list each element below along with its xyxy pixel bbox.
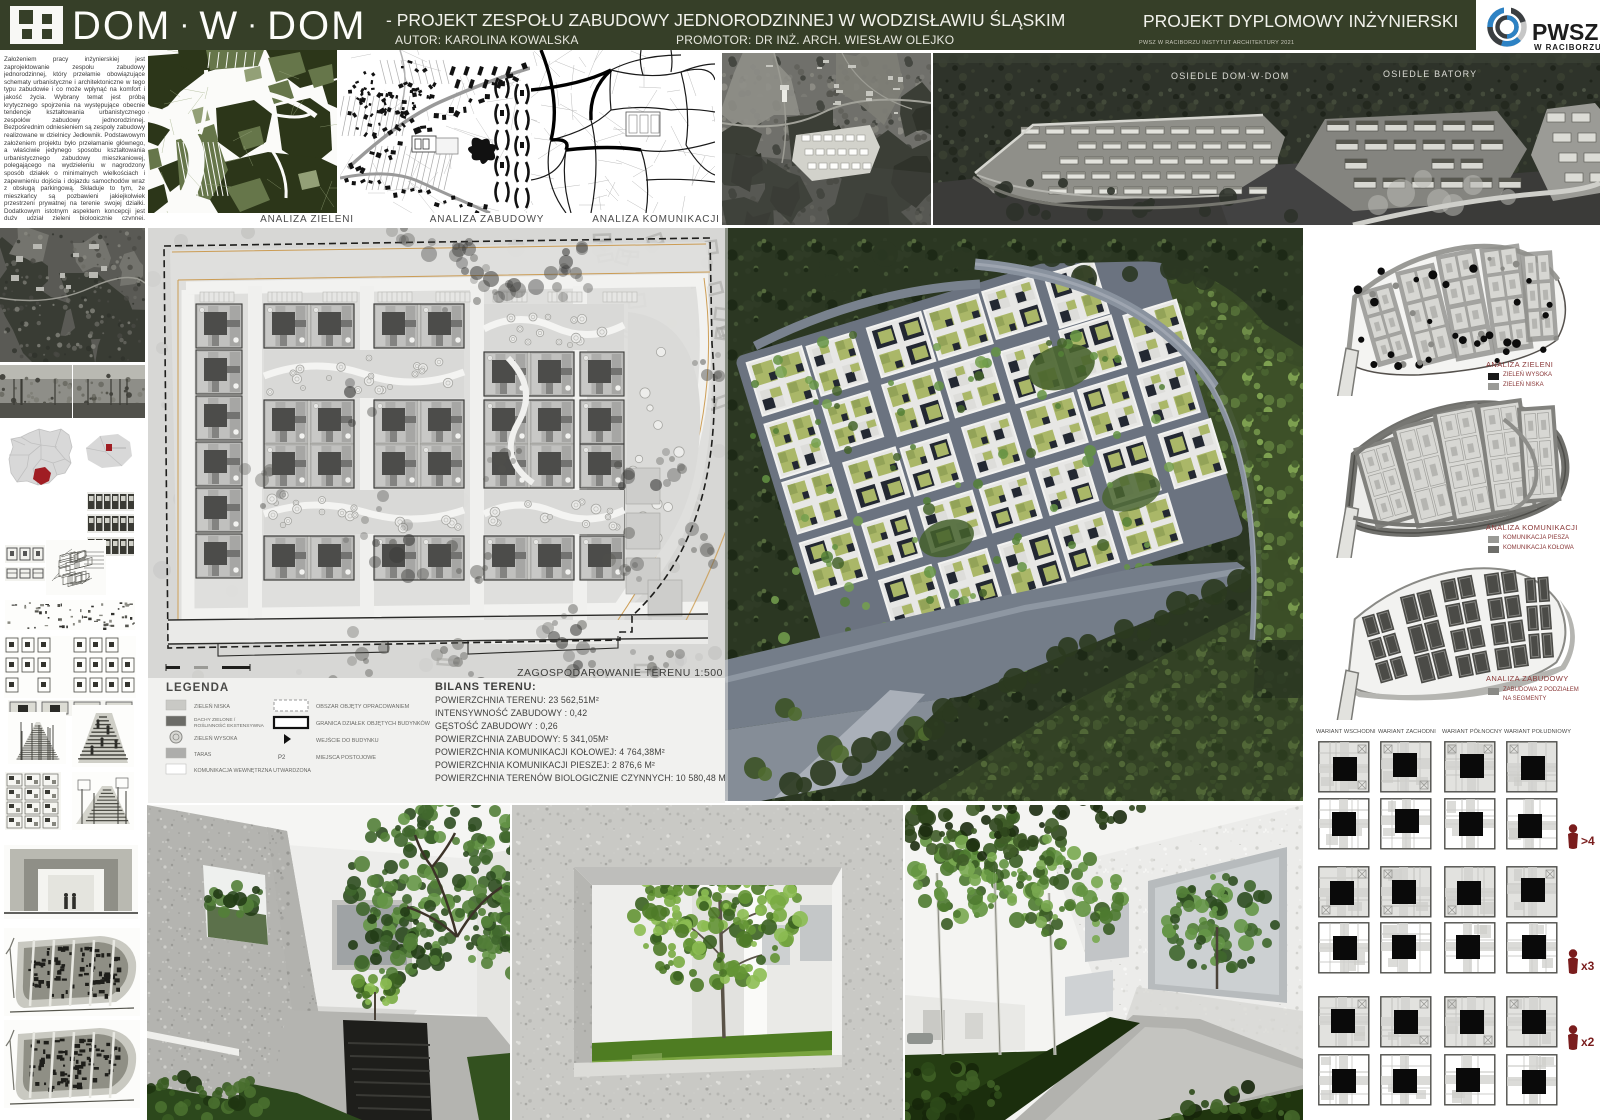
svg-text:W RACIBORZU: W RACIBORZU: [1534, 43, 1600, 52]
svg-text:P2: P2: [278, 755, 286, 761]
svg-text:ZIELEŃ WYSOKA: ZIELEŃ WYSOKA: [194, 735, 238, 742]
svg-text:x2: x2: [1581, 1035, 1595, 1049]
svg-text:WEJŚCIE DO BUDYNKU: WEJŚCIE DO BUDYNKU: [316, 736, 379, 744]
svg-text:PWSZ: PWSZ: [1532, 19, 1598, 45]
svg-text:x3: x3: [1581, 959, 1595, 973]
svg-text:GRANICA DZIAŁEK OBJĘTYCH BUDYN: GRANICA DZIAŁEK OBJĘTYCH BUDYNKÓW: [316, 720, 431, 727]
svg-text:>4: >4: [1581, 834, 1595, 848]
svg-text:OSIEDLE BATORY: OSIEDLE BATORY: [1383, 69, 1477, 79]
svg-text:MIEJSCA POSTOJOWE: MIEJSCA POSTOJOWE: [316, 755, 376, 761]
svg-text:DACHY ZIELONE /: DACHY ZIELONE /: [194, 717, 236, 723]
svg-text:KOMUNIKACJA WEWNĘTRZNA UTWARDZ: KOMUNIKACJA WEWNĘTRZNA UTWARDZONA: [194, 768, 311, 774]
svg-text:OBSZAR OBJĘTY OPRACOWANIEM: OBSZAR OBJĘTY OPRACOWANIEM: [316, 704, 410, 710]
svg-text:TARAS: TARAS: [194, 752, 212, 758]
svg-text:OSIEDLE DOM·W·DOM: OSIEDLE DOM·W·DOM: [1171, 71, 1289, 81]
svg-text:ZIELEŃ NISKA: ZIELEŃ NISKA: [194, 703, 230, 710]
